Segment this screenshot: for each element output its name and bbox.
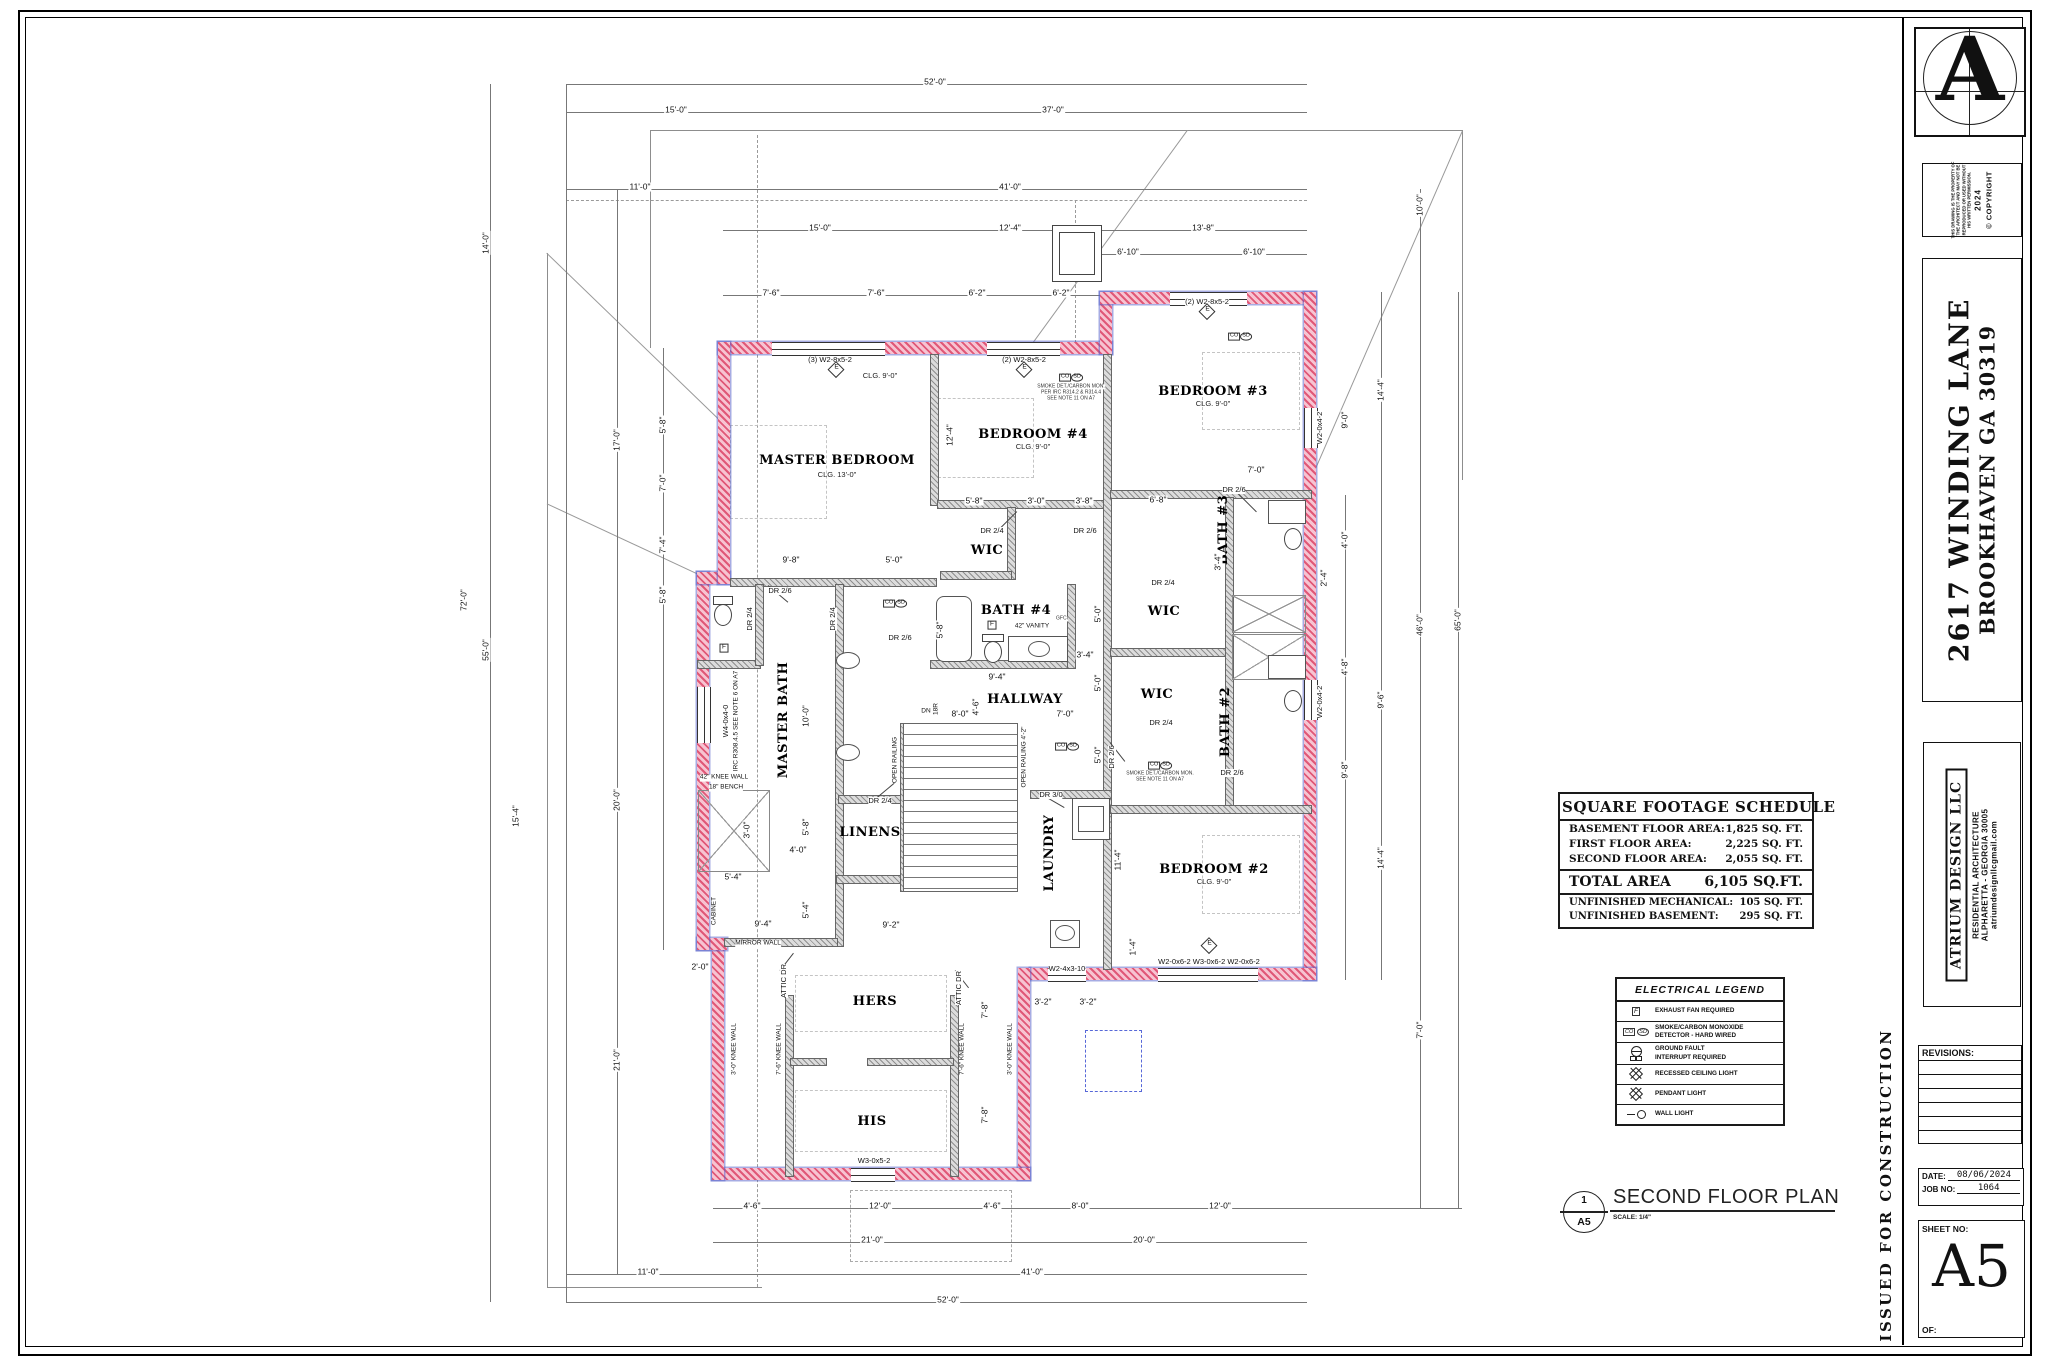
toilet-bowl (714, 604, 732, 626)
door-tag: DR 3/0 (1039, 791, 1062, 799)
exterior-wall (1018, 968, 1030, 1180)
schedule-total-row: TOTAL AREA 6,105 SQ.FT. (1560, 869, 1812, 895)
door-tag: DR 2/4 (1149, 719, 1172, 727)
dimension-label: 41'-0" (1020, 1268, 1044, 1277)
window-tag: W2-0x4-2 (1316, 412, 1324, 445)
window (1158, 968, 1258, 982)
co-detector-icon: CO (883, 600, 895, 608)
window-tag: W3-0x5-2 (858, 1157, 891, 1165)
dimension-label: 21'-0" (860, 1236, 884, 1245)
wall-light-icon (1617, 1110, 1655, 1119)
ceiling-height-label: CLG. 9'-0" (863, 372, 898, 380)
dimension-label: 8'-0" (1071, 1202, 1090, 1211)
electrical-e-symbol: E (830, 364, 842, 381)
dimension-label: 7'-0" (659, 474, 668, 493)
interior-wall (785, 995, 794, 1177)
chimney-inner (1059, 232, 1095, 275)
smoke-co-detector-symbol: COSD (883, 592, 907, 609)
toilet-bowl (1284, 528, 1302, 550)
schedule-row-value: 1,825 SQ. FT. (1725, 823, 1803, 835)
ceiling-height-label: CLG. 9'-0" (1197, 878, 1232, 886)
dimension-label: 12'-4" (998, 224, 1022, 233)
dimension-label: 13'-8" (1191, 224, 1215, 233)
shower-tub (1232, 595, 1306, 633)
job-row: JOB NO: 1064 (1919, 1182, 2023, 1195)
egress-diamond-icon: E (1199, 303, 1216, 320)
door-tag: DR 2/4 (868, 797, 891, 805)
square-footage-schedule: SQUARE FOOTAGE SCHEDULE BASEMENT FLOOR A… (1558, 792, 1814, 929)
dimension-label: 9'-4" (754, 920, 773, 929)
dimension-label: 20'-0" (613, 788, 622, 812)
revisions-label: REVISIONS: (1919, 1046, 2021, 1060)
dimension-label: 7'-0" (1056, 710, 1075, 719)
interior-wall (697, 660, 761, 669)
dimension-label: 41'-0" (998, 183, 1022, 192)
logo-letter: A (1916, 21, 2024, 118)
detail-callout-divider (1560, 1211, 1608, 1213)
interior-wall (867, 1058, 954, 1066)
dimension-label: 65'-0" (1454, 608, 1463, 632)
door-tag: DR 2/6 (888, 634, 911, 642)
legend-row: RECESSED CEILING LIGHT (1617, 1065, 1783, 1085)
dimension-label: 7'-0" (1416, 1021, 1425, 1040)
dimension-label: 5'-0" (1094, 746, 1103, 765)
sheet-number: A5 (1919, 1236, 2024, 1297)
interior-wall (835, 584, 844, 947)
schedule-row-label: UNFINISHED MECHANICAL: (1569, 897, 1733, 908)
dimension-label: 6'-8" (1149, 496, 1168, 505)
dimension-label: 2'-4" (1320, 569, 1329, 588)
dimension-label: 5'-4" (802, 901, 811, 920)
stairs (903, 723, 1018, 892)
sd-detector-icon: SD (1067, 743, 1079, 751)
dimension-label: 9'-8" (782, 556, 801, 565)
roof-line (547, 1287, 762, 1288)
room-label: BEDROOM #2 (1159, 863, 1268, 877)
schedule-row: UNFINISHED BASEMENT: 295 SQ. FT. (1560, 909, 1812, 927)
room-label: HALLWAY (987, 693, 1063, 707)
date-row: DATE: 08/06/2024 (1919, 1169, 2023, 1182)
sheet-of-label: OF: (1922, 1325, 1937, 1335)
dimension-label: 55'-0" (482, 638, 491, 662)
electrical-e-symbol: E (1203, 940, 1215, 957)
plan-title: SECOND FLOOR PLAN (1613, 1186, 1839, 1209)
project-address-box: 2617 WINDING LANE BROOKHAVEN GA 30319 (1922, 258, 2022, 702)
blue-dashed-box (1085, 1030, 1142, 1092)
dimension-label: 15'-4" (512, 804, 521, 828)
sd-detector-icon: SD (1160, 762, 1172, 770)
firm-name: ATRIUM DESIGN LLC (1946, 768, 1968, 980)
plan-note: OPEN RAILING 4'-2" (1022, 727, 1029, 788)
plan-note: 7'-6" KNEE WALL (777, 1023, 784, 1075)
plan-note-small: SEE NOTE 11 ON A7 (1136, 777, 1184, 782)
copyright-box: THIS DRAWING IS THE PROPERTY OF THE ARCH… (1922, 163, 2022, 237)
legend-row: GROUND FAULT INTERRUPT REQUIRED (1617, 1043, 1783, 1064)
smoke-co-detector-icon: COSD (1617, 1028, 1655, 1036)
copyright-note: THIS DRAWING IS THE PROPERTY OF THE ARCH… (1951, 161, 1972, 239)
dimension-label: 3'-4" (1214, 553, 1223, 572)
dimension-label: 3'-0" (743, 821, 752, 840)
detail-callout: 1 A5 (1563, 1191, 1605, 1233)
dimension-label: 7'-8" (981, 1001, 990, 1020)
copyright-year: 2024 (1974, 189, 1983, 211)
revision-row (1919, 1102, 2021, 1116)
vanity-sink (1028, 641, 1050, 657)
room-label: LINENS (839, 826, 900, 840)
dimension-label: 20'-0" (1132, 1236, 1156, 1245)
roof-dashed-line (757, 135, 758, 1287)
exhaust-fan-icon: F (720, 644, 729, 653)
window-tag: W2-4x3-10 (1049, 965, 1086, 973)
electrical-e-symbol: E (1201, 306, 1213, 323)
plan-note: 3'-0" KNEE WALL (1008, 1023, 1015, 1075)
dimension-label: 1'-4" (1129, 938, 1138, 957)
bed-outline (730, 425, 827, 519)
toilet-bowl (984, 641, 1002, 663)
window (697, 687, 711, 743)
project-address-line1: 2617 WINDING LANE (1945, 298, 1976, 663)
exhaust-fan-symbol: F (988, 614, 997, 631)
dimension-label: 5'-8" (802, 818, 811, 837)
schedule-row: FIRST FLOOR AREA: 2,225 SQ. FT. (1560, 836, 1812, 851)
vanity-counter (1268, 655, 1306, 679)
project-address-line2: BROOKHAVEN GA 30319 (1976, 325, 2000, 635)
vanity-sink (836, 652, 860, 669)
sd-detector-icon: SD (895, 600, 907, 608)
interior-wall (790, 1058, 827, 1066)
plan-note: CABINET (712, 897, 719, 925)
dimension-label: 4'-6" (972, 698, 981, 717)
dimension-label: 37'-0" (1041, 106, 1065, 115)
dimension-label: 14'-4" (1377, 378, 1386, 402)
plan-note: 18R (934, 703, 941, 715)
room-label: MASTER BATH (777, 662, 791, 779)
room-label: WIC (971, 544, 1004, 558)
schedule-row-value: 2,055 SQ. FT. (1725, 853, 1803, 865)
titleblock-divider (1902, 17, 1904, 1345)
smoke-co-detector-symbol: COSD (1148, 754, 1172, 771)
dimension-label: 21'-0" (613, 1048, 622, 1072)
sheet-number-box: SHEET NO: A5 OF: (1918, 1220, 2025, 1338)
legend-title: ELECTRICAL LEGEND (1617, 979, 1783, 1002)
revision-row (1919, 1116, 2021, 1130)
schedule-row-label: BASEMENT FLOOR AREA: (1569, 823, 1725, 835)
plan-note: 18" BENCH (709, 785, 743, 792)
door-tag: ATTIC DR (955, 971, 963, 1005)
schedule-title: SQUARE FOOTAGE SCHEDULE (1560, 794, 1812, 821)
architect-logo: A (1914, 27, 2026, 137)
dimension-label: 5'-4" (724, 873, 743, 882)
exhaust-fan-icon: F (988, 621, 997, 630)
dimension-label: 4'-0" (789, 846, 808, 855)
dimension-label: 4'-6" (743, 1202, 762, 1211)
co-detector-icon: CO (1148, 762, 1160, 770)
dimension-line (566, 189, 1307, 190)
firm-box: ATRIUM DESIGN LLC RESIDENTIAL ARCHITECTU… (1923, 742, 2021, 1007)
dimension-label: 14'-4" (1377, 846, 1386, 870)
schedule-total-label: TOTAL AREA (1569, 874, 1671, 890)
dimension-label: 5'-0" (1094, 674, 1103, 693)
exhaust-fan-icon: F (1617, 1007, 1655, 1016)
laundry-sink-basin (1055, 925, 1075, 941)
dimension-label: 4'-6" (983, 1202, 1002, 1211)
dimension-label: 3'-2" (1079, 998, 1098, 1007)
date-value: 08/06/2024 (1948, 1170, 2020, 1181)
legend-row: COSD SMOKE/CARBON MONOXIDE DETECTOR - HA… (1617, 1022, 1783, 1043)
dimension-label: 52'-0" (936, 1296, 960, 1305)
room-label: BEDROOM #4 (978, 428, 1087, 442)
dimension-label: 17'-0" (613, 428, 622, 452)
smoke-co-detector-symbol: COSD (1228, 325, 1252, 342)
interior-wall (1110, 490, 1312, 499)
issued-for-construction: ISSUED FOR CONSTRUCTION (1877, 1028, 1895, 1341)
legend-row: PENDANT LIGHT (1617, 1085, 1783, 1105)
dimension-label: 12'-0" (1208, 1202, 1232, 1211)
dimension-label: 72'-0" (460, 588, 469, 612)
exterior-wall (712, 945, 724, 1180)
dimension-label: 7'-8" (981, 1106, 990, 1125)
dimension-line (566, 1274, 1307, 1275)
interior-wall (1110, 805, 1312, 814)
electrical-legend: ELECTRICAL LEGEND F EXHAUST FAN REQUIRED… (1615, 977, 1785, 1126)
legend-row-text: PENDANT LIGHT (1655, 1088, 1708, 1100)
window-tag: W2-0x4-2 (1316, 686, 1324, 719)
firm-email: atriumdesignllcgmail.com (1990, 820, 1999, 928)
legend-row-text: GROUND FAULT INTERRUPT REQUIRED (1655, 1043, 1728, 1063)
window-tag: W2-0x6-2 W3-0x6-2 W2-0x6-2 (1158, 958, 1260, 966)
room-label: HERS (853, 995, 897, 1009)
dimension-label: 3'-0" (1027, 497, 1046, 506)
interior-wall (930, 354, 939, 506)
egress-diamond-icon: E (1016, 361, 1033, 378)
dimension-label: 5'-8" (659, 416, 668, 435)
detail-number: 1 (1564, 1195, 1604, 1206)
plan-note: 42" KNEE WALL (700, 775, 748, 782)
plan-scale: SCALE: 1/4" (1613, 1214, 1651, 1221)
firm-line: ALPHARETTA - GEORGIA 30005 (1981, 808, 1990, 941)
schedule-row: SECOND FLOOR AREA: 2,055 SQ. FT. (1560, 851, 1812, 866)
roof-line (650, 130, 1462, 131)
plan-note: 7'-6" KNEE WALL (960, 1023, 967, 1075)
legend-row: WALL LIGHT (1617, 1105, 1783, 1124)
roof-line (547, 253, 548, 1287)
dimension-label: 6'-2" (1052, 289, 1071, 298)
roof-dashed-line (566, 200, 1307, 201)
drawing-sheet: MASTER BEDROOMCLG. 13'-0"BEDROOM #4CLG. … (0, 0, 2048, 1365)
dimension-label: 52'-0" (923, 78, 947, 87)
room-label: WIC (1141, 688, 1174, 702)
job-number-label: JOB NO: (1922, 1185, 1955, 1194)
ground-fault-icon (1617, 1046, 1655, 1061)
interior-wall (940, 571, 1012, 580)
copyright-mark: © COPYRIGHT (1985, 171, 1994, 229)
plan-note: DN (921, 709, 930, 716)
egress-diamond-icon: E (828, 361, 845, 378)
room-label: BATH #2 (1219, 687, 1233, 757)
dimension-label: 7'-0" (1247, 466, 1266, 475)
schedule-row: BASEMENT FLOOR AREA: 1,825 SQ. FT. (1560, 821, 1812, 836)
plan-note: MIRROR WALL (735, 941, 781, 948)
co-detector-icon: CO (1055, 743, 1067, 751)
door-tag: DR 2/4 (980, 527, 1003, 535)
dimension-line (1458, 292, 1459, 1208)
dimension-label: 11'-0" (636, 1268, 659, 1277)
dimension-label: 12'-4" (946, 423, 955, 447)
exhaust-fan-symbol: F (720, 637, 729, 654)
legend-row-text: EXHAUST FAN REQUIRED (1655, 1005, 1736, 1017)
dimension-label: 9'-2" (882, 921, 901, 930)
exterior-wall (697, 572, 709, 950)
plan-note-small: SEE NOTE 11 ON A7 (1047, 396, 1095, 401)
dimension-label: 9'-6" (1377, 691, 1386, 710)
window (987, 342, 1060, 356)
plan-note: 42" VANITY (1015, 624, 1049, 631)
dimension-label: 7'-6" (762, 289, 781, 298)
smoke-co-detector-symbol: COSD (1055, 735, 1079, 752)
date-label: DATE: (1922, 1172, 1946, 1181)
sd-detector-icon: SD (1071, 374, 1083, 382)
smoke-co-detector-symbol: COSD (1059, 366, 1083, 383)
legend-row-text: RECESSED CEILING LIGHT (1655, 1068, 1740, 1080)
window (851, 1168, 895, 1182)
interior-wall (1110, 648, 1230, 657)
revision-row (1919, 1130, 2021, 1144)
chimney (1052, 225, 1102, 282)
dimension-line (1420, 189, 1421, 1208)
room-label: BEDROOM #3 (1158, 385, 1267, 399)
interior-wall (755, 584, 764, 666)
dimension-label: 9'-8" (1341, 761, 1350, 780)
ceiling-height-label: CLG. 13'-0" (818, 471, 857, 479)
door-tag: ATTIC DR (780, 964, 788, 998)
interior-wall (1103, 354, 1112, 970)
dimension-label: 14'-0" (482, 231, 491, 255)
dimension-line (490, 84, 491, 1302)
door-tag: DR 2/6 (1073, 527, 1096, 535)
dimension-label: 10'-0" (1416, 193, 1425, 217)
dimension-label: 9'-4" (988, 673, 1007, 682)
dimension-label: 2'-0" (691, 963, 710, 972)
dimension-line (566, 84, 567, 1302)
room-label: HIS (857, 1115, 886, 1129)
plan-note: 3'-0" KNEE WALL (732, 1023, 739, 1075)
schedule-row-label: SECOND FLOOR AREA: (1569, 853, 1707, 865)
revision-row (1919, 1088, 2021, 1102)
dryer (1078, 806, 1104, 832)
schedule-row: UNFINISHED MECHANICAL: 105 SQ. FT. (1560, 895, 1812, 909)
sd-detector-icon: SD (1240, 333, 1252, 341)
room-label: WIC (1148, 605, 1181, 619)
schedule-row-label: FIRST FLOOR AREA: (1569, 838, 1692, 850)
co-detector-icon: CO (1228, 333, 1240, 341)
dimension-label: 5'-8" (965, 497, 984, 506)
dimension-line (1345, 495, 1346, 980)
dimension-label: 9'-0" (1341, 411, 1350, 430)
ceiling-height-label: CLG. 9'-0" (1016, 443, 1051, 451)
pendant-light-icon (1617, 1089, 1655, 1099)
revisions-box: REVISIONS: (1918, 1045, 2022, 1144)
dimension-label: 46'-0" (1416, 613, 1425, 637)
schedule-total-value: 6,105 SQ.FT. (1704, 874, 1803, 890)
dimension-label: 6'-10" (1242, 248, 1266, 257)
firm-line: RESIDENTIAL ARCHITECTURE (1972, 811, 1981, 939)
dimension-label: 11'-4" (1114, 848, 1123, 871)
revision-row (1919, 1074, 2021, 1088)
dimension-line (663, 348, 664, 950)
date-job-box: DATE: 08/06/2024 JOB NO: 1064 (1918, 1168, 2024, 1206)
plan-note: OPEN RAILING (893, 737, 900, 783)
window (772, 342, 885, 356)
roof-line (1462, 130, 1463, 480)
door-tag: DR 2/6 (768, 587, 791, 595)
room-label: MASTER BEDROOM (759, 454, 915, 468)
job-number-value: 1064 (1957, 1183, 2020, 1194)
dimension-label: 8'-0" (951, 710, 970, 719)
legend-row-text: SMOKE/CARBON MONOXIDE DETECTOR - HARD WI… (1655, 1022, 1746, 1042)
dimension-label: 3'-2" (1034, 998, 1053, 1007)
dimension-label: 15'-0" (664, 106, 688, 115)
vanity-sink (836, 744, 860, 761)
schedule-row-value: 105 SQ. FT. (1740, 897, 1804, 908)
dimension-label: 12'-0" (868, 1202, 892, 1211)
exterior-wall (718, 342, 730, 584)
schedule-row-value: 2,225 SQ. FT. (1725, 838, 1803, 850)
dimension-label: 3'-8" (1075, 497, 1094, 506)
roof-line (650, 130, 651, 348)
dimension-label: 5'-8" (936, 621, 945, 640)
dimension-label: 4'-8" (1341, 658, 1350, 677)
door-tag: DR 2/4 (829, 607, 837, 630)
door-tag: DR 2/4 (1151, 579, 1174, 587)
plan-title-underline (1610, 1210, 1835, 1212)
room-label: LAUNDRY (1043, 815, 1057, 892)
dimension-label: 4'-0" (1341, 531, 1350, 550)
dimension-label: 7'-6" (867, 289, 886, 298)
master-shower (698, 790, 770, 872)
dimension-label: 6'-2" (968, 289, 987, 298)
recessed-light-icon (1617, 1069, 1655, 1079)
door-tag: DR 2/6 (1222, 486, 1245, 494)
door-tag: DR 2/6 (1108, 745, 1116, 768)
egress-diamond-icon: E (1201, 937, 1218, 954)
co-detector-icon: CO (1059, 374, 1071, 382)
dimension-label: 5'-8" (659, 586, 668, 605)
dimension-label: 15'-0" (808, 224, 832, 233)
toilet-bowl (1284, 690, 1302, 712)
dimension-label: 6'-10" (1116, 248, 1140, 257)
ceiling-height-label: CLG. 9'-0" (1196, 400, 1231, 408)
legend-row: F EXHAUST FAN REQUIRED (1617, 1002, 1783, 1022)
schedule-row-value: 295 SQ. FT. (1740, 911, 1804, 922)
plan-note-small: GFCI (1056, 616, 1068, 621)
dimension-label: 10'-0" (802, 704, 811, 728)
dimension-line (617, 189, 618, 1274)
detail-sheet: A5 (1564, 1216, 1604, 1228)
door-tag: DR 2/6 (1220, 769, 1243, 777)
vanity-counter (1268, 500, 1306, 524)
revision-row (1919, 1060, 2021, 1074)
electrical-e-symbol: E (1018, 364, 1030, 381)
dimension-label: 5'-0" (1094, 605, 1103, 624)
plan-note: IRC R308.4.5 SEE NOTE 6 ON A7 (734, 671, 741, 771)
dimension-line (713, 1242, 1307, 1243)
dimension-label: 5'-0" (885, 556, 904, 565)
dimension-label: 11'-0" (628, 183, 651, 192)
schedule-row-label: UNFINISHED BASEMENT: (1569, 911, 1719, 922)
window-tag: W4-0x4-0 (722, 705, 730, 738)
dimension-label: 3'-4" (1076, 651, 1095, 660)
door-tag: DR 2/4 (746, 607, 754, 630)
